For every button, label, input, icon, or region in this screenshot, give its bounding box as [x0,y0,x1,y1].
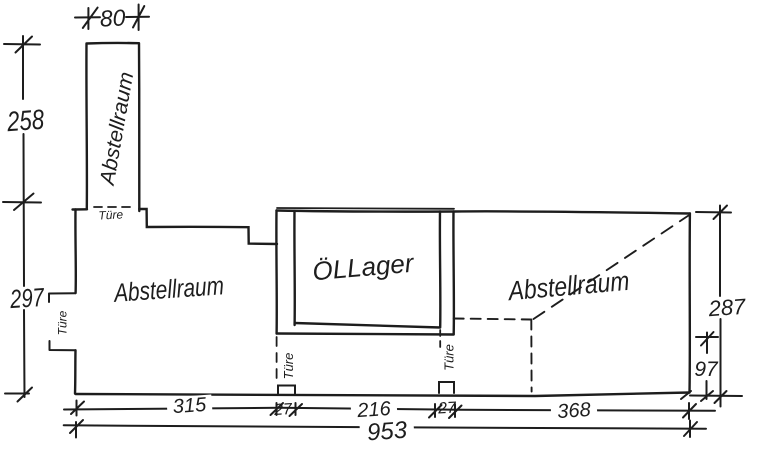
svg-text:Abstellraum: Abstellraum [95,70,138,188]
svg-text:953: 953 [366,417,408,447]
svg-text:97: 97 [694,358,719,381]
svg-text:258: 258 [5,104,45,138]
svg-text:315: 315 [172,394,208,418]
svg-text:Türe: Türe [98,207,124,222]
svg-text:297: 297 [8,282,46,314]
svg-text:ÖLLager: ÖLLager [311,248,416,287]
svg-text:27: 27 [437,399,458,417]
svg-text:Abstellraum: Abstellraum [506,266,631,307]
svg-text:80: 80 [99,4,126,31]
svg-text:Türe: Türe [442,344,457,371]
svg-text:Abstellraum: Abstellraum [111,270,224,308]
svg-text:287: 287 [707,294,747,322]
svg-text:368: 368 [557,399,592,423]
svg-text:Türe: Türe [56,310,70,335]
svg-text:27: 27 [273,401,294,419]
svg-text:Türe: Türe [281,353,296,380]
